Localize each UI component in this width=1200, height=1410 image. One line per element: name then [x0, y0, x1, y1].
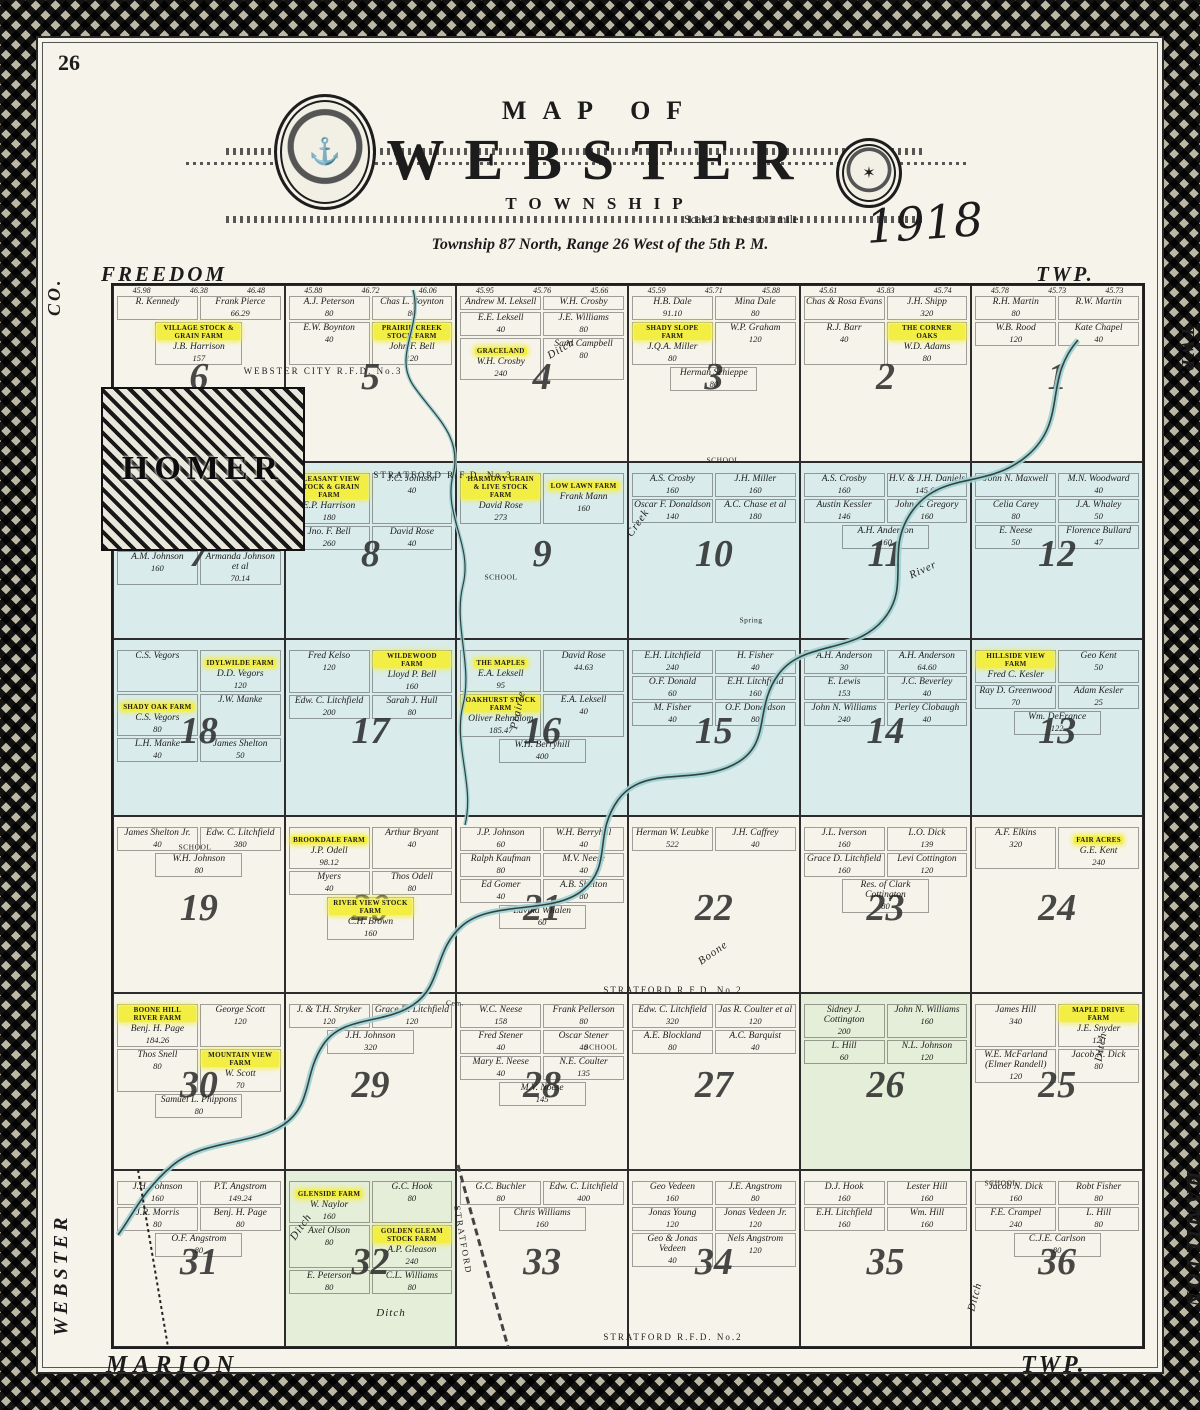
- parcel: O.F. Donald60: [632, 676, 713, 700]
- acreage: 80: [545, 350, 622, 360]
- parcel: George Scott120: [200, 1004, 281, 1047]
- parcel: BOONE HILL RIVER FARMBenj. H. Page184.26: [117, 1004, 198, 1047]
- acreage: 40: [717, 839, 794, 849]
- survey-number: 45.98: [133, 286, 151, 295]
- owner-name: Oliver Rehnblom: [462, 715, 539, 725]
- parcel-list: James Hill340MAPLE DRIVE FARMJ.E. Snyder…: [974, 1003, 1140, 1168]
- parcel: M.N. Woodward40: [1058, 473, 1139, 497]
- acreage: 40: [1060, 334, 1137, 344]
- section-10: 10A.S. Crosby160J.H. Miller160Oscar F. D…: [628, 462, 800, 639]
- parcel: David Rose44.63: [543, 650, 624, 692]
- owner-name: J.P. Odell: [291, 847, 368, 857]
- acreage: 30: [806, 662, 883, 672]
- acreage: 91.10: [634, 308, 711, 318]
- parcel: W.H. Johnson80: [155, 853, 242, 877]
- parcel: Geo Vedeen160: [632, 1181, 713, 1205]
- owner-name: C.J.E. Carlson: [1016, 1235, 1099, 1245]
- survey-number: 45.88: [304, 286, 322, 295]
- parcel: G.C. Hook80: [372, 1181, 453, 1223]
- acreage: 70: [977, 697, 1054, 707]
- owner-name: Florence Bullard: [1060, 527, 1137, 537]
- farm-name-highlight: VILLAGE STOCK & GRAIN FARM: [157, 324, 240, 340]
- owner-name: Fred C. Kesler: [977, 671, 1054, 681]
- parcel: John N. Williams160: [887, 1004, 968, 1038]
- acreage: 40: [545, 1042, 622, 1052]
- acreage: 146: [806, 511, 883, 521]
- owner-name: H.B. Dale: [634, 298, 711, 308]
- owner-name: A.E. Blockland: [634, 1032, 711, 1042]
- acreage: 80: [119, 1061, 196, 1071]
- parcel-list: HARMONY GRAIN & LIVE STOCK FARMDavid Ros…: [459, 472, 625, 637]
- owner-name: O.F. Angstrom: [157, 1235, 240, 1245]
- acreage: 400: [545, 1193, 622, 1203]
- acreage: 273: [462, 512, 539, 522]
- parcel-list: A.J. Peterson80Chas L. Boynton80E.W. Boy…: [288, 295, 454, 460]
- parcel: J.L. Iverson160: [804, 827, 885, 851]
- parcel: E. Neese50: [975, 525, 1056, 549]
- owner-name: M.N. Woodward: [1060, 475, 1137, 485]
- acreage: 160: [291, 1211, 368, 1221]
- parcel: A.H. Anderson160: [842, 525, 929, 549]
- acreage: 140: [634, 511, 711, 521]
- acreage: 120: [889, 865, 966, 875]
- section-26: 26Sidney J. Cottington200John N. William…: [800, 993, 972, 1170]
- owner-name: W.D. Adams: [889, 343, 966, 353]
- acreage: 160: [806, 1193, 883, 1203]
- parcel: Ralph Kaufman80: [460, 853, 541, 877]
- parcel-list: J. & T.H. Stryker120Grace D. Litchfield1…: [288, 1003, 454, 1168]
- parcel: HARMONY GRAIN & LIVE STOCK FARMDavid Ros…: [460, 473, 541, 524]
- owner-name: J.B. Harrison: [157, 343, 240, 353]
- section-12: 12John N. MaxwellM.N. Woodward40Celia Ca…: [971, 462, 1143, 639]
- acreage: 145.60: [889, 485, 966, 495]
- acreage: 120: [634, 1219, 711, 1229]
- owner-name: C.H. Brown: [329, 918, 412, 928]
- owner-name: Geo Kent: [1060, 652, 1137, 662]
- parcel-list: G.C. Buchler80Edw. C. Litchfield400Chris…: [459, 1180, 625, 1345]
- farm-name-highlight: SHADY SLOPE FARM: [634, 324, 711, 340]
- owner-name: D.J. Hook: [806, 1183, 883, 1193]
- parcel: J.E. Angstrom80: [715, 1181, 796, 1205]
- acreage: 380: [202, 839, 279, 849]
- parcel-list: HILLSIDE VIEW FARMFred C. KeslerGeo Kent…: [974, 649, 1140, 814]
- acreage: 80: [462, 865, 539, 875]
- parcel: O.F. Donaldson80: [715, 702, 796, 726]
- section-11: 11A.S. Crosby160H.V. & J.H. Daniels145.6…: [800, 462, 972, 639]
- acreage: 80: [1060, 1219, 1137, 1229]
- survey-number: 45.76: [533, 286, 551, 295]
- parcel: N.E. Coulter135: [543, 1056, 624, 1080]
- owner-name: A.H. Anderson: [806, 652, 883, 662]
- parcel: P.T. Angstrom149.24: [200, 1181, 281, 1205]
- owner-name: G.C. Buchler: [462, 1183, 539, 1193]
- parcel: H.V. & J.H. Daniels145.60: [887, 473, 968, 497]
- parcel: THE MAPLESE.A. Leksell95: [460, 650, 541, 692]
- farm-name-highlight: BOONE HILL RIVER FARM: [119, 1006, 196, 1022]
- parcel: A.H. Anderson64.60: [887, 650, 968, 674]
- acreage: 50: [977, 537, 1054, 547]
- owner-name: Mina Dale: [717, 298, 794, 308]
- parcel: WILDEWOOD FARMLloyd P. Bell160: [372, 650, 453, 693]
- acreage: 40: [545, 839, 622, 849]
- acreage: 25: [1060, 697, 1137, 707]
- parcel: Edw. C. Litchfield200: [289, 695, 370, 719]
- parcel: Sarah J. Hull80: [372, 695, 453, 719]
- owner-name: E. Neese: [977, 527, 1054, 537]
- farm-name-highlight: RIVER VIEW STOCK FARM: [329, 899, 412, 915]
- township-map: 45.9846.3846.4845.8846.7246.0645.9545.76…: [111, 283, 1145, 1349]
- owner-name: Andrew M. Leksell: [462, 298, 539, 308]
- parcel: Arthur Bryant40: [372, 827, 453, 869]
- parcel: J.W. Manke: [200, 694, 281, 736]
- section-21: 21J.P. Johnson60W.H. Berryhill40Ralph Ka…: [456, 816, 628, 993]
- acreage: 60: [462, 839, 539, 849]
- owner-name: Chas & Rosa Evans: [806, 298, 883, 308]
- parcel: Myers40: [289, 871, 370, 895]
- parcel-list: A.S. Crosby160H.V. & J.H. Daniels145.60A…: [803, 472, 969, 637]
- farm-name-highlight: OAKHURST STOCK FARM: [462, 696, 539, 712]
- handwritten-year: 1918: [864, 192, 985, 254]
- parcel: J.H. Shipp320: [887, 296, 968, 320]
- owner-name: Axel Olson: [291, 1227, 368, 1237]
- parcel: Ed Gomer40: [460, 879, 541, 903]
- owner-name: J.E. Williams: [545, 314, 622, 324]
- parcel: Fred Stener40: [460, 1030, 541, 1054]
- section-3: 3H.B. Dale91.10Mina Dale80SHADY SLOPE FA…: [628, 285, 800, 462]
- acreage: 50: [202, 750, 279, 760]
- scale-note: Scale 2 inches to 1 mile: [684, 212, 798, 227]
- owner-name: Chris Williams: [501, 1209, 584, 1219]
- owner-name: M. Fisher: [634, 704, 711, 714]
- parcel-list: Edw. C. Litchfield320Jas R. Coulter et a…: [631, 1003, 797, 1168]
- owner-name: Jacob N. Dick: [977, 1183, 1054, 1193]
- flourish-line: [226, 216, 926, 223]
- acreage: 320: [889, 308, 966, 318]
- survey-measurements: 45.9846.3846.4845.8846.7246.0645.9545.76…: [113, 286, 1143, 295]
- parcel: Mina Dale80: [715, 296, 796, 320]
- survey-number: 45.59: [648, 286, 666, 295]
- owner-name: Geo Vedeen: [634, 1183, 711, 1193]
- parcel-list: Sidney J. Cottington200John N. Williams1…: [803, 1003, 969, 1168]
- owner-name: Nels Angstrom: [717, 1235, 794, 1245]
- owner-name: Chas L. Boynton: [374, 298, 451, 308]
- owner-name: James Hill: [977, 1006, 1054, 1016]
- parcel: James Shelton Jr.40: [117, 827, 198, 851]
- parcel: Herman W. Leubke522: [632, 827, 713, 851]
- acreage: 80: [462, 1193, 539, 1203]
- parcel: W.P. Graham120: [715, 322, 796, 365]
- section-36: 36Jacob N. Dick160Robt Fisher80F.E. Cram…: [971, 1170, 1143, 1347]
- parcel: J.H. Miller160: [715, 473, 796, 497]
- acreage: 120: [291, 1016, 368, 1026]
- acreage: 160: [806, 865, 883, 875]
- section-16: 16THE MAPLESE.A. Leksell95David Rose44.6…: [456, 639, 628, 816]
- owner-name: David Rose: [462, 502, 539, 512]
- parcel: IDYLWILDE FARMD.D. Vegors120: [200, 650, 281, 692]
- parcel: Chris Williams160: [499, 1207, 586, 1231]
- owner-name: David Rose: [545, 652, 622, 662]
- acreage: 120: [717, 334, 794, 344]
- acreage: 80: [119, 724, 196, 734]
- parcel: J.R. Morris80: [117, 1207, 198, 1231]
- acreage: 80: [1060, 1193, 1137, 1203]
- acreage: 80: [157, 1245, 240, 1255]
- acreage: 40: [119, 750, 196, 760]
- parcel: W.H. Crosby: [543, 296, 624, 310]
- owner-name: A.F. Elkins: [977, 829, 1054, 839]
- acreage: 80: [374, 883, 451, 893]
- parcel: GRACELANDW.H. Crosby240: [460, 338, 541, 380]
- parcel: Andrew M. Leksell: [460, 296, 541, 310]
- owner-name: Celia Carey: [977, 501, 1054, 511]
- parcel: E.H. Litchfield160: [804, 1207, 885, 1231]
- section-25: 25James Hill340MAPLE DRIVE FARMJ.E. Snyd…: [971, 993, 1143, 1170]
- owner-name: C.S. Vegors: [119, 714, 196, 724]
- owner-name: John N. Maxwell: [977, 475, 1054, 485]
- edge-label-twp-right: TWP.: [1177, 326, 1198, 378]
- title-map-of: MAP OF: [36, 96, 1164, 126]
- acreage: 158: [462, 1016, 539, 1026]
- acreage: 70: [202, 1080, 279, 1090]
- parcel: A.B. Shelton80: [543, 879, 624, 903]
- parcel: C.L. Williams80: [372, 1270, 453, 1294]
- parcel: E.E. Leksell40: [460, 312, 541, 336]
- parcel: THE CORNER OAKSW.D. Adams80: [887, 322, 968, 365]
- acreage: 40: [806, 334, 883, 344]
- parcel: N.L. Johnson120: [887, 1040, 968, 1064]
- acreage: 64.60: [889, 662, 966, 672]
- owner-name: Sidney J. Cottington: [806, 1006, 883, 1026]
- acreage: 80: [545, 891, 622, 901]
- acreage: 240: [1060, 857, 1137, 867]
- parcel: Edw. C. Litchfield380: [200, 827, 281, 851]
- acreage: 160: [806, 485, 883, 495]
- owner-name: L.H. Manke: [119, 740, 196, 750]
- acreage: 120: [374, 353, 451, 363]
- parcel: H. Fisher40: [715, 650, 796, 674]
- parcel: Chas L. Boynton80: [372, 296, 453, 320]
- parcel: L.O. Dick139: [887, 827, 968, 851]
- owner-name: R.J. Barr: [806, 324, 883, 334]
- owner-name: A.P. Gleason: [374, 1246, 451, 1256]
- parcel: Edw. C. Litchfield320: [632, 1004, 713, 1028]
- acreage: 160: [844, 537, 927, 547]
- owner-name: M.V. Noese: [501, 1084, 584, 1094]
- owner-name: N.E. Coulter: [545, 1058, 622, 1068]
- acreage: 80: [291, 308, 368, 318]
- parcel-list: A.S. Crosby160J.H. Miller160Oscar F. Don…: [631, 472, 797, 637]
- acreage: 160: [634, 485, 711, 495]
- section-28: 28W.C. Neese158Frank Pellerson80Fred Ste…: [456, 993, 628, 1170]
- farm-name-highlight: THE MAPLES: [474, 659, 527, 667]
- acreage: 120: [889, 1052, 966, 1062]
- survey-number: 45.73: [1048, 286, 1066, 295]
- owner-name: George Scott: [202, 1006, 279, 1016]
- parcel: J.E. Williams80: [543, 312, 624, 336]
- section-20: 20BROOKDALE FARMJ.P. Odell98.12Arthur Br…: [285, 816, 457, 993]
- acreage: 80: [977, 308, 1054, 318]
- parcel: M. Fisher40: [632, 702, 713, 726]
- parcel: Jacob N. Dick160: [975, 1181, 1056, 1205]
- owner-name: G.C. Hook: [374, 1183, 451, 1193]
- acreage: 160: [889, 1193, 966, 1203]
- acreage: 320: [634, 1016, 711, 1026]
- parcel: LOW LAWN FARMFrank Mann160: [543, 473, 624, 524]
- parcel: J.C. Beverley40: [887, 676, 968, 700]
- section-32: 32GLENSIDE FARMW. Naylor160G.C. Hook80Ax…: [285, 1170, 457, 1347]
- survey-number: 45.95: [476, 286, 494, 295]
- parcel: A.H. Anderson30: [804, 650, 885, 674]
- acreage: 80: [374, 1282, 451, 1292]
- acreage: 40: [462, 1042, 539, 1052]
- parcel: Benj. H. Page80: [200, 1207, 281, 1231]
- owner-name: E.H. Litchfield: [806, 1209, 883, 1219]
- parcel: A.E. Blockland80: [632, 1030, 713, 1054]
- farm-name-highlight: PRAIRIE CREEK STOCK FARM: [374, 324, 451, 340]
- edge-label-hamilton: HAMILTON: [1181, 1171, 1200, 1310]
- owner-name: Mary E. Neese: [462, 1058, 539, 1068]
- parcel-list: Geo Vedeen160J.E. Angstrom80Jonas Young1…: [631, 1180, 797, 1345]
- parcel: Mary E. Neese40: [460, 1056, 541, 1080]
- owner-name: W.E. McFarland (Elmer Randell): [977, 1051, 1054, 1071]
- owner-name: J.P. Johnson: [462, 829, 539, 839]
- owner-name: Jonas Vedeen Jr.: [717, 1209, 794, 1219]
- owner-name: A.M. Johnson: [119, 553, 196, 563]
- parcel: Lester Hill160: [887, 1181, 968, 1205]
- acreage: 40: [462, 891, 539, 901]
- owner-name: J.L. Iverson: [806, 829, 883, 839]
- owner-name: Oscar F. Donaldson: [634, 501, 711, 511]
- owner-name: A.C. Barquist: [717, 1032, 794, 1042]
- parcel: GLENSIDE FARMW. Naylor160: [289, 1181, 370, 1223]
- section-1: 1R.H. Martin80R.W. MartinW.B. Rood120Kat…: [971, 285, 1143, 462]
- section-22: 22Herman W. Leubke522J.H. Caffrey40: [628, 816, 800, 993]
- parcel: Jonas Young120: [632, 1207, 713, 1231]
- owner-name: E.H. Litchfield: [717, 678, 794, 688]
- survey-number: 46.48: [247, 286, 265, 295]
- owner-name: Edw. C. Litchfield: [545, 1183, 622, 1193]
- survey-number: 45.71: [705, 286, 723, 295]
- farm-name-highlight: GOLDEN GLEAM STOCK FARM: [374, 1227, 451, 1243]
- owner-name: E.W. Boynton: [291, 324, 368, 334]
- survey-number: 45.88: [762, 286, 780, 295]
- farm-name-highlight: HARMONY GRAIN & LIVE STOCK FARM: [462, 475, 539, 499]
- acreage: 145: [501, 1094, 584, 1104]
- owner-name: A.S. Crosby: [634, 475, 711, 485]
- owner-name: J.A. Whaley: [1060, 501, 1137, 511]
- parcel: G.C. Buchler80: [460, 1181, 541, 1205]
- homer-label: HOMER: [122, 450, 284, 488]
- survey-number: 46.06: [419, 286, 437, 295]
- owner-name: L.O. Dick: [889, 829, 966, 839]
- survey-number: 45.83: [876, 286, 894, 295]
- acreage: 80: [545, 324, 622, 334]
- owner-name: E. Peterson: [291, 1272, 368, 1282]
- acreage: 120: [717, 1219, 794, 1229]
- owner-name: Fred Stener: [462, 1032, 539, 1042]
- owner-name: John F. Bell: [374, 343, 451, 353]
- section-24: 24A.F. Elkins320FAIR ACRESG.E. Kent240: [971, 816, 1143, 993]
- owner-name: Saml Campbell: [545, 340, 622, 350]
- owner-name: L. Hill: [1060, 1209, 1137, 1219]
- title-township: TOWNSHIP: [36, 194, 1164, 214]
- parcel-list: Herman W. Leubke522J.H. Caffrey40: [631, 826, 797, 991]
- section-17: 17Fred Kelso120WILDEWOOD FARMLloyd P. Be…: [285, 639, 457, 816]
- acreage: 160: [374, 681, 451, 691]
- parcel-list: J.P. Johnson60W.H. Berryhill40Ralph Kauf…: [459, 826, 625, 991]
- parcel: L. Hill60: [804, 1040, 885, 1064]
- owner-name: A.H. Anderson: [844, 527, 927, 537]
- owner-name: W.H. Crosby: [545, 298, 622, 308]
- owner-name: John A. Gregory: [889, 501, 966, 511]
- parcel: L.H. Manke40: [117, 738, 198, 762]
- parcel: Armanda Johnson et al70.14: [200, 551, 281, 585]
- parcel: E. Peterson80: [289, 1270, 370, 1294]
- owner-name: Jacob N. Dick: [1060, 1051, 1137, 1061]
- acreage: 240: [462, 368, 539, 378]
- acreage: 47: [1060, 537, 1137, 547]
- parcel: GOLDEN GLEAM STOCK FARMA.P. Gleason240: [372, 1225, 453, 1268]
- owner-name: Myers: [291, 873, 368, 883]
- farm-name-highlight: FAIR ACRES: [1074, 836, 1123, 844]
- survey-number: 45.78: [991, 286, 1009, 295]
- owner-name: R.H. Martin: [977, 298, 1054, 308]
- acreage: 160: [717, 688, 794, 698]
- page-number: 26: [58, 50, 80, 76]
- acreage: 40: [462, 1068, 539, 1078]
- acreage: 40: [545, 865, 622, 875]
- parcel: J.H. Johnson320: [327, 1030, 414, 1054]
- acreage: 80: [374, 1193, 451, 1203]
- page-title: WEBSTER: [36, 126, 1164, 193]
- parcel: Geo & Jonas Vedeen40: [632, 1233, 713, 1267]
- plat-map-page: 26 ⚓ ✶ MAP OF WEBSTER TOWNSHIP Scale 2 i…: [0, 0, 1200, 1410]
- acreage: 66.29: [202, 308, 279, 318]
- parcel: A.J. Peterson80: [289, 296, 370, 320]
- owner-name: W.H. Johnson: [157, 855, 240, 865]
- acreage: 40: [717, 1042, 794, 1052]
- owner-name: Frank Mann: [545, 493, 622, 503]
- owner-name: J.H. Johnson: [119, 1183, 196, 1193]
- owner-name: Ray D. Greenwood: [977, 687, 1054, 697]
- owner-name: R.W. Martin: [1060, 298, 1137, 308]
- owner-name: P.T. Angstrom: [202, 1183, 279, 1193]
- owner-name: Jas R. Coulter et al: [717, 1006, 794, 1016]
- parcel: Thos Odell80: [372, 871, 453, 895]
- parcel: Jacob N. Dick80: [1058, 1049, 1139, 1083]
- owner-name: A.B. Shelton: [545, 881, 622, 891]
- owner-name: John N. Williams: [889, 1006, 966, 1016]
- owner-name: H.V. & J.H. Daniels: [889, 475, 966, 485]
- owner-name: W.H. Crosby: [462, 358, 539, 368]
- owner-name: Wm. DeFrance: [1016, 713, 1099, 723]
- owner-name: Thos Snell: [119, 1051, 196, 1061]
- parcel: Oscar F. Donaldson140: [632, 499, 713, 523]
- section-18: 18C.S. VegorsIDYLWILDE FARMD.D. Vegors12…: [113, 639, 285, 816]
- parcel: A.M. Johnson160: [117, 551, 198, 585]
- section-15: 15E.H. Litchfield240H. Fisher40O.F. Dona…: [628, 639, 800, 816]
- acreage: 40: [291, 334, 368, 344]
- acreage: 135: [545, 1068, 622, 1078]
- owner-name: J.H. Shipp: [889, 298, 966, 308]
- parcel: W.C. Neese158: [460, 1004, 541, 1028]
- owner-name: J.H. Miller: [717, 475, 794, 485]
- parcel: David Rose40: [372, 526, 453, 550]
- edge-label-webster: WEBSTER: [50, 1214, 73, 1336]
- owner-name: Perley Clobaugh: [889, 704, 966, 714]
- acreage: 160: [501, 1219, 584, 1229]
- parcel: J.H. Caffrey40: [715, 827, 796, 851]
